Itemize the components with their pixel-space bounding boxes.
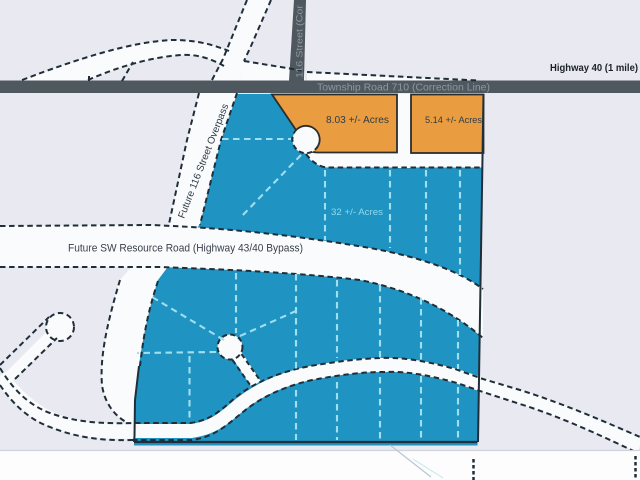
svg-text:Township Road 710 (Correction: Township Road 710 (Correction Line)	[317, 82, 490, 94]
svg-text:32 +/- Acres: 32 +/- Acres	[331, 207, 383, 218]
svg-text:116 Street (Cor: 116 Street (Cor	[295, 5, 305, 78]
svg-text:8.03 +/- Acres: 8.03 +/- Acres	[326, 115, 389, 126]
svg-text:Future SW Resource Road (Highw: Future SW Resource Road (Highway 43/40 B…	[68, 243, 303, 255]
svg-text:5.14 +/- Acres: 5.14 +/- Acres	[425, 115, 482, 126]
svg-text:Highway 40 (1 mile): Highway 40 (1 mile)	[550, 62, 638, 74]
